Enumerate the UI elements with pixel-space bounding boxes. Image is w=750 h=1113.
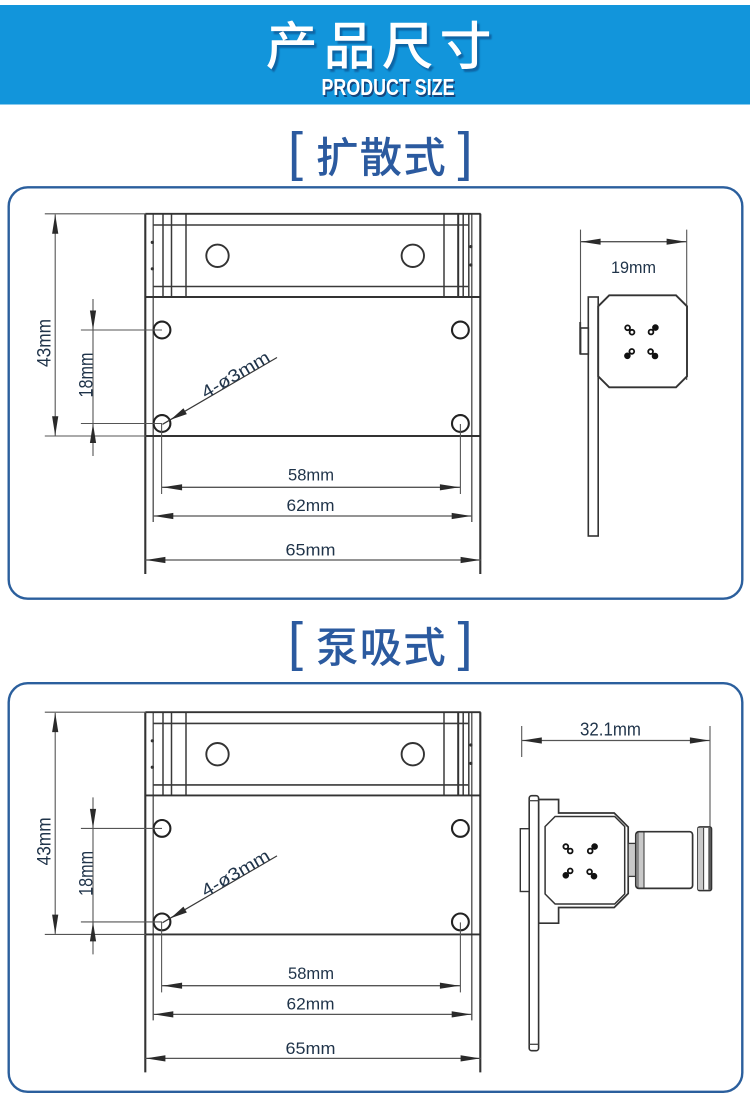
svg-text:4-ø3mm: 4-ø3mm	[198, 845, 274, 900]
svg-text:58mm: 58mm	[288, 965, 334, 983]
svg-text:]: ]	[458, 122, 473, 182]
svg-text:4-ø3mm: 4-ø3mm	[198, 347, 274, 402]
svg-text:43mm: 43mm	[34, 817, 55, 865]
svg-text:65mm: 65mm	[286, 542, 336, 560]
svg-text:62mm: 62mm	[287, 497, 335, 515]
svg-text:65mm: 65mm	[286, 1040, 336, 1058]
svg-text:62mm: 62mm	[287, 995, 335, 1013]
svg-text:19mm: 19mm	[611, 259, 656, 277]
svg-text:18mm: 18mm	[76, 353, 97, 398]
svg-text:58mm: 58mm	[288, 467, 334, 485]
svg-text:[: [	[288, 122, 303, 182]
svg-text:32.1mm: 32.1mm	[580, 718, 641, 739]
svg-text:43mm: 43mm	[34, 319, 55, 367]
svg-text:PRODUCT SIZE: PRODUCT SIZE	[322, 74, 455, 100]
svg-text:18mm: 18mm	[76, 851, 97, 896]
svg-text:]: ]	[458, 612, 473, 672]
svg-text:[: [	[288, 612, 303, 672]
